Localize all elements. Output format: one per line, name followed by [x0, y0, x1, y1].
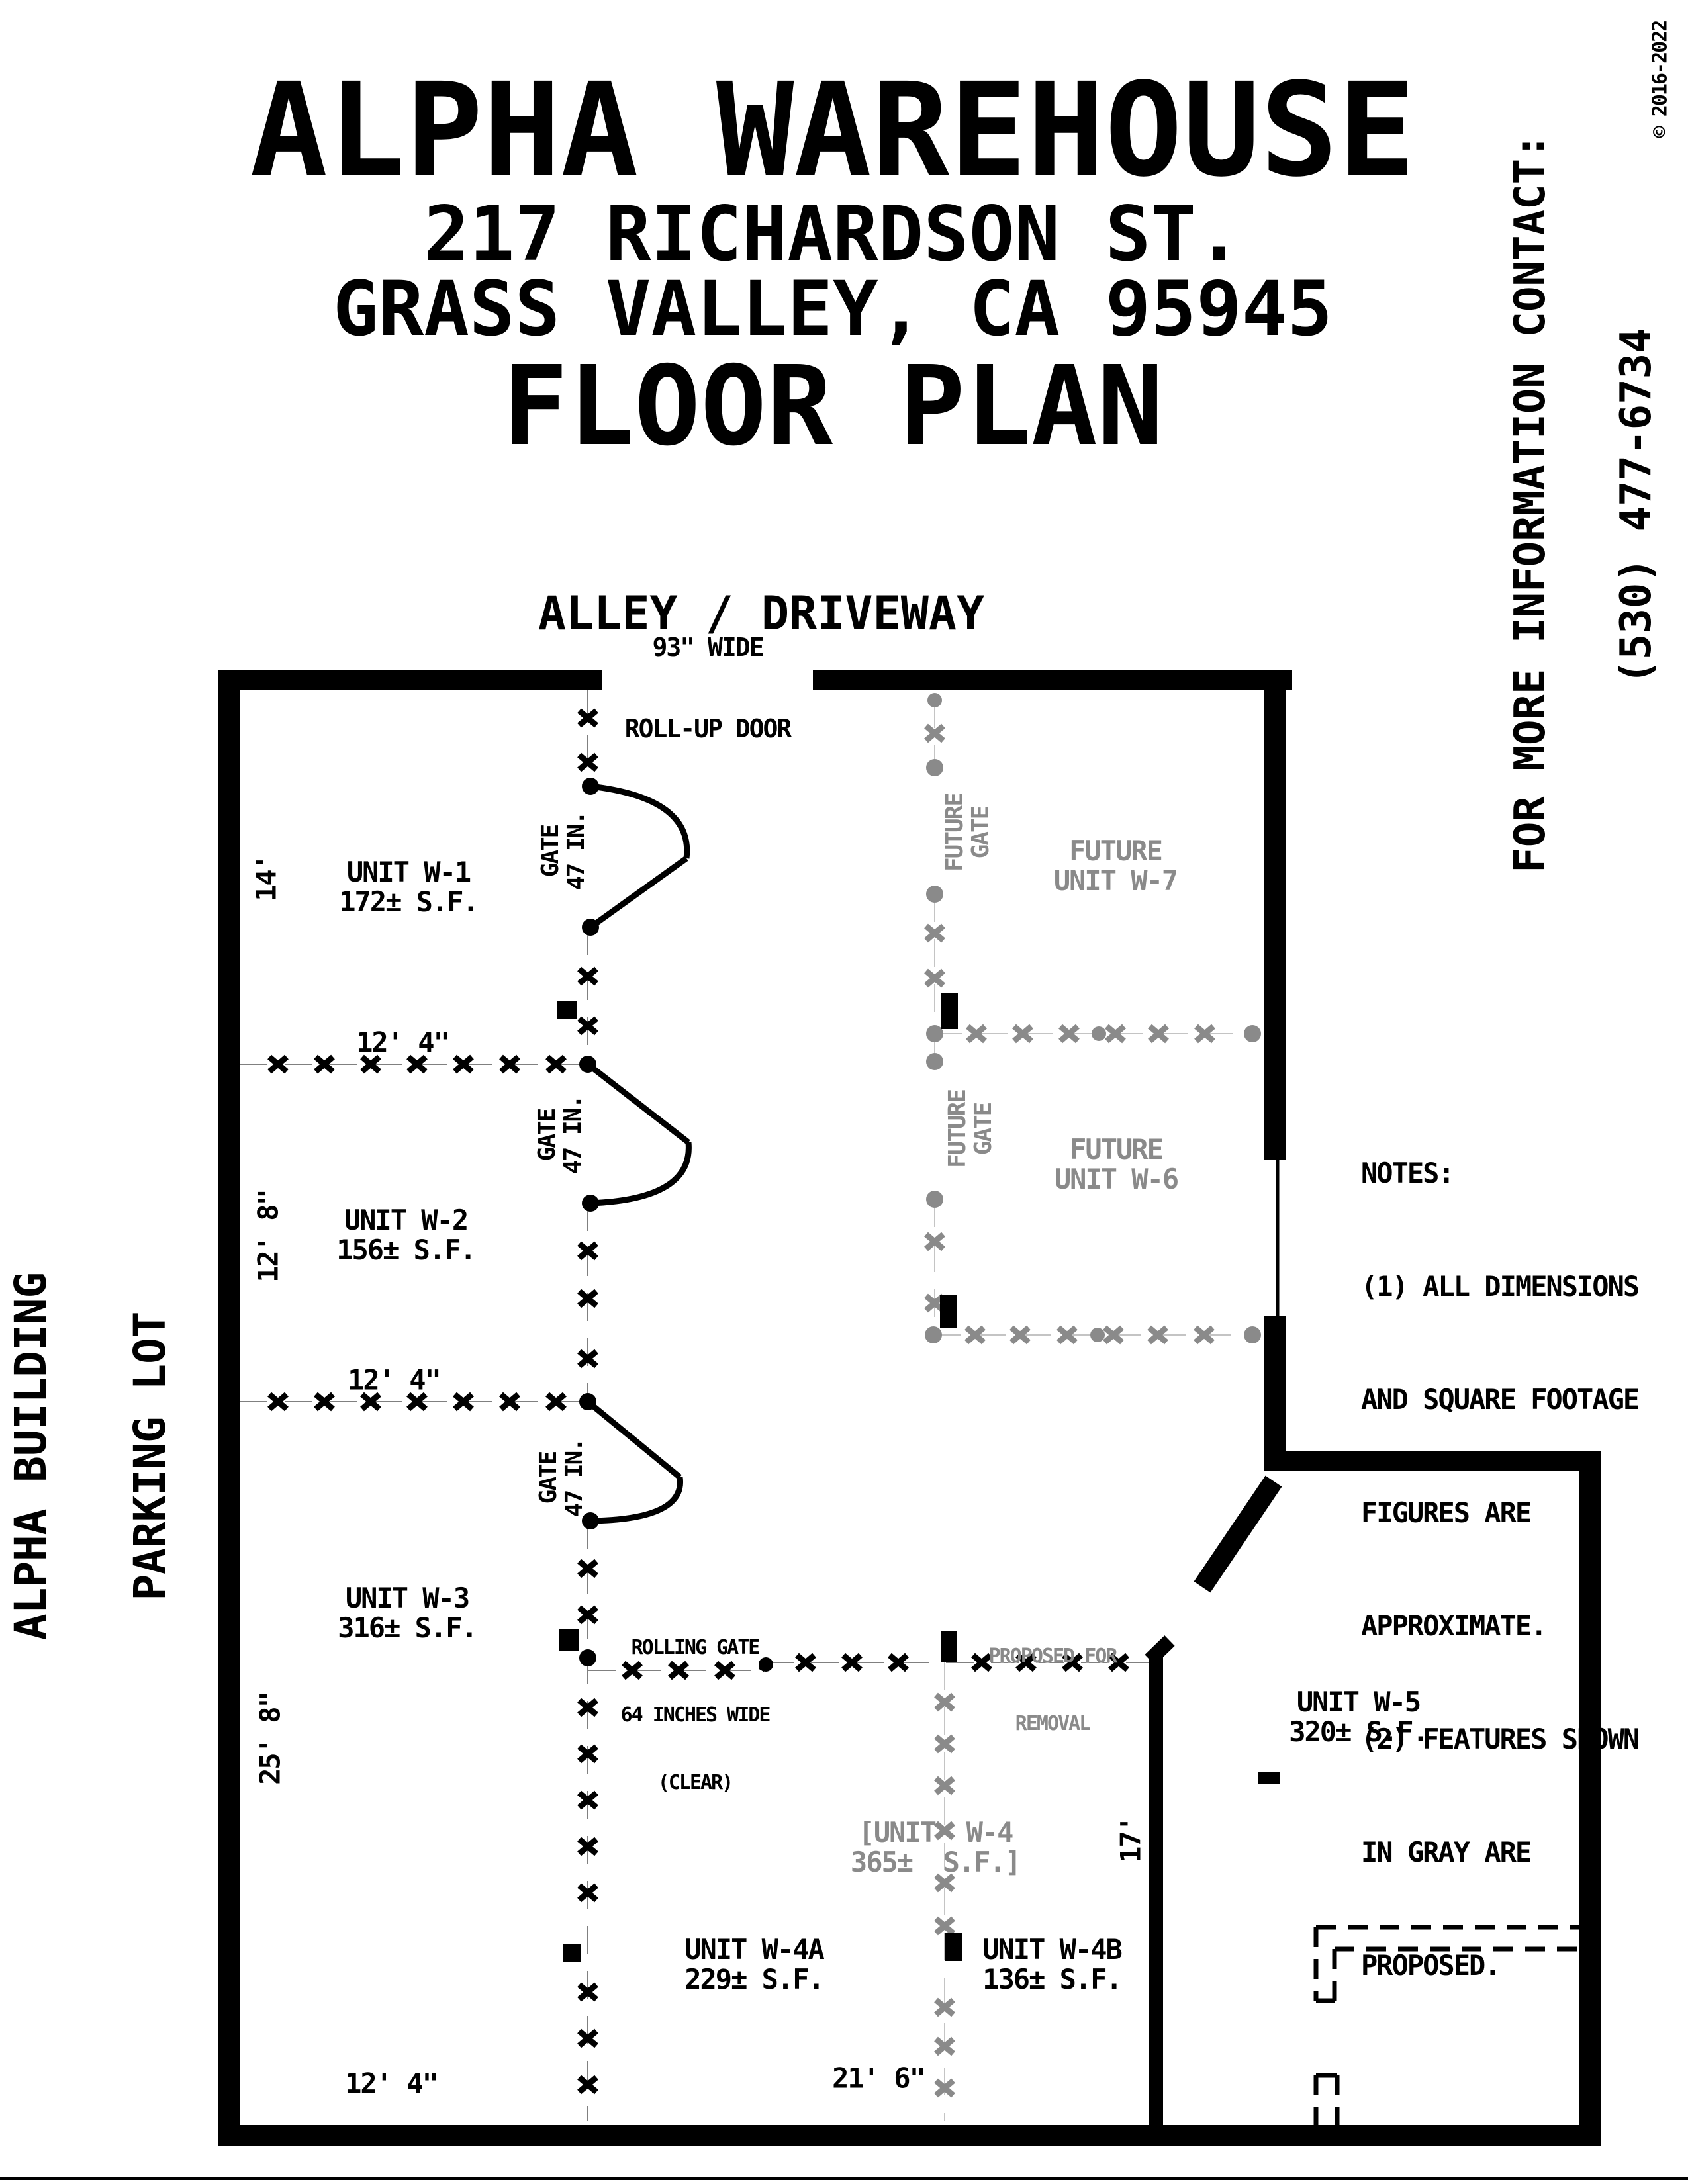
- note-line: FIGURES ARE: [1361, 1494, 1638, 1531]
- future-gate-label-1: FUTUREGATE: [890, 794, 1045, 872]
- title-drawing-type: FLOOR PLAN: [502, 351, 1163, 463]
- note-line: (2) FEATURES SHOWN: [1361, 1720, 1638, 1758]
- future-gate-label-2: FUTUREGATE: [893, 1090, 1048, 1168]
- unit-w4a-label: UNIT W-4A229± S.F.: [684, 1875, 823, 2054]
- dim-12ft8in: 12' 8": [254, 1190, 283, 1283]
- dim-12ft4in-upper: 12' 4": [356, 1028, 449, 1058]
- contact-label: FOR MORE INFORMATION CONTACT:: [1509, 133, 1552, 872]
- dim-14ft: 14': [252, 855, 281, 901]
- dim-12ft4in-mid: 12' 4": [348, 1365, 440, 1395]
- gate-47in-label-2: GATE47 IN.: [483, 1096, 637, 1174]
- title-city-state-zip: GRASS VALLEY, CA 95945: [333, 270, 1333, 348]
- note-line: PROPOSED.: [1361, 1946, 1638, 1984]
- future-unit-w7-label: FUTUREUNIT W-7: [1054, 776, 1177, 955]
- future-unit-w6-label: FUTUREUNIT W-6: [1055, 1075, 1178, 1253]
- note-line: AND SQUARE FOOTAGE: [1361, 1381, 1638, 1418]
- floor-plan-page: ALPHA WAREHOUSE 217 RICHARDSON ST. GRASS…: [0, 0, 1688, 2184]
- copyright-label: © 2016-2022: [1651, 21, 1670, 138]
- dim-25ft8in: 25' 8": [256, 1692, 285, 1785]
- gate-47in-label-3: GATE47 IN.: [484, 1439, 639, 1517]
- unit-w4b-label: UNIT W-4B136± S.F.: [982, 1875, 1121, 2054]
- unit-w1-label: UNIT W-1172± S.F.: [339, 797, 478, 976]
- dim-12ft4in-bottom: 12' 4": [345, 2069, 438, 2099]
- phone-label: (530) 477-6734: [1615, 328, 1658, 684]
- gate-47in-label-1: GATE47 IN.: [486, 812, 641, 890]
- unit-w2-label: UNIT W-2156± S.F.: [336, 1146, 475, 1324]
- rolling-gate-label: ROLLING GATE 64 INCHES WIDE (CLEAR): [621, 1592, 770, 1839]
- unit-w3-label: UNIT W-3316± S.F.: [338, 1524, 477, 1702]
- title-street-address: 217 RICHARDSON ST.: [424, 195, 1241, 273]
- note-line: IN GRAY ARE: [1361, 1833, 1638, 1871]
- note-line: (1) ALL DIMENSIONS: [1361, 1267, 1638, 1305]
- title-building-name: ALPHA WAREHOUSE: [250, 64, 1416, 197]
- dim-21ft6in: 21' 6": [832, 2064, 925, 2093]
- note-line: APPROXIMATE.: [1361, 1607, 1638, 1645]
- note-line: NOTES:: [1361, 1154, 1638, 1192]
- proposed-for-removal-label: PROPOSED FOR REMOVAL: [989, 1600, 1117, 1780]
- dim-17ft: 17': [1116, 1817, 1146, 1863]
- notes-block: NOTES: (1) ALL DIMENSIONS AND SQUARE FOO…: [1361, 1079, 1638, 2060]
- rollup-door-label: 93" WIDE ROLL-UP DOOR: [625, 580, 791, 797]
- parking-lot-label: ALPHA BUILDING PARKING LOT: [0, 1272, 250, 1640]
